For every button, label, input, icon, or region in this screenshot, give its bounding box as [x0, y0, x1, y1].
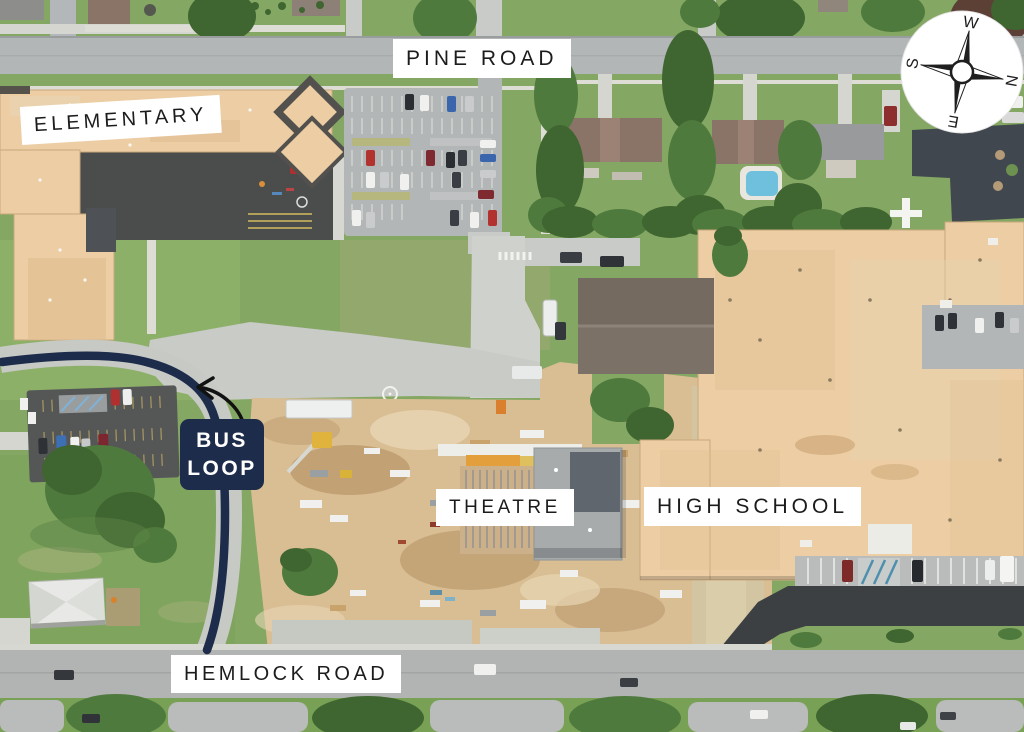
hemlock-road-label: HEMLOCK ROAD	[171, 655, 401, 693]
theatre-label: THEATRE	[436, 489, 574, 526]
bus-loop-label: BUS LOOP	[180, 419, 264, 490]
bus-loop-label-line1: BUS	[180, 427, 264, 455]
high-school-label: HIGH SCHOOL	[644, 487, 861, 526]
campus-aerial-map: N E S W PINE ROAD ELEMENTARY THEATRE HIG…	[0, 0, 1024, 732]
pine-road-label: PINE ROAD	[393, 39, 571, 78]
storage-shed	[29, 578, 105, 629]
hemlock-road-surface	[0, 644, 1024, 732]
bus-loop-label-line2: LOOP	[180, 455, 264, 483]
elementary-parking-lot	[344, 70, 510, 254]
